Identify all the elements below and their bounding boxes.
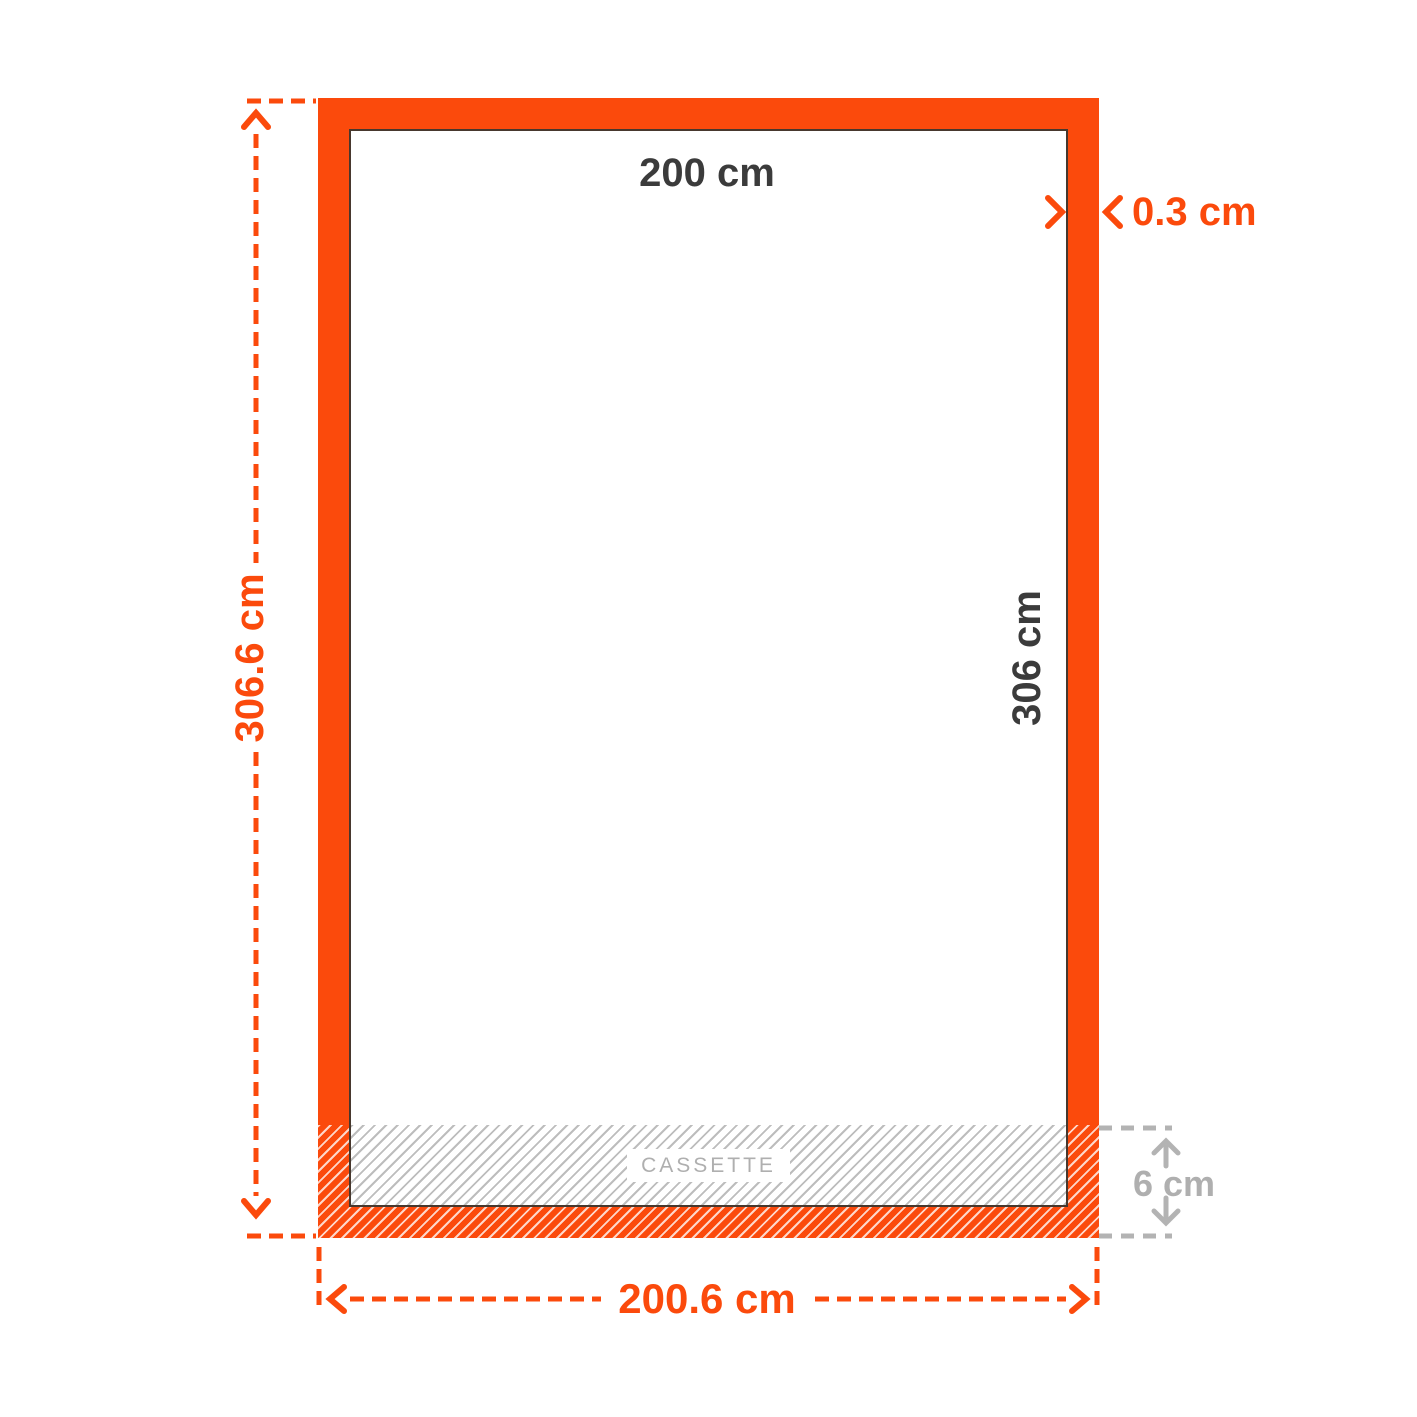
arrow-up-icon xyxy=(1154,1141,1178,1153)
arrow-left-icon xyxy=(1106,198,1120,226)
inner-height-label: 306 cm xyxy=(1007,590,1047,726)
arrow-down-icon xyxy=(1154,1211,1178,1223)
cassette-height-label: 6 cm xyxy=(1133,1166,1215,1202)
arrow-down-icon xyxy=(244,1201,268,1215)
screen-dimension-diagram: CASSETTE xyxy=(0,0,1417,1417)
arrow-right-icon xyxy=(1072,1287,1086,1311)
cassette-area: CASSETTE xyxy=(351,1125,1066,1205)
arrow-left-icon xyxy=(330,1287,344,1311)
cassette-label: CASSETTE xyxy=(627,1149,790,1182)
screen-viewing-area: CASSETTE xyxy=(349,129,1068,1207)
screen-frame: CASSETTE xyxy=(318,98,1099,1238)
inner-width-label: 200 cm xyxy=(639,153,775,193)
outer-width-label: 200.6 cm xyxy=(618,1278,795,1320)
border-thickness-label: 0.3 cm xyxy=(1132,192,1257,232)
outer-height-label: 306.6 cm xyxy=(230,573,270,742)
arrow-up-icon xyxy=(244,113,268,127)
